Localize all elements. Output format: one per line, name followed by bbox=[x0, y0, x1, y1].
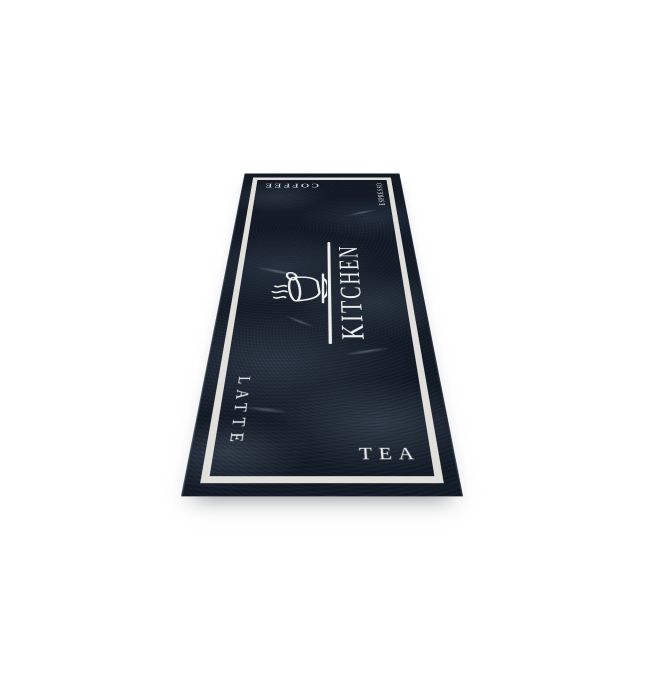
saucer-icon bbox=[323, 274, 327, 302]
coffee-cup-icon bbox=[264, 263, 327, 315]
kitchen-rug: COFFEE ESPRESSO LATTE TEA bbox=[181, 174, 463, 497]
product-photo: COFFEE ESPRESSO LATTE TEA bbox=[0, 0, 650, 680]
rug-perspective-wrap: COFFEE ESPRESSO LATTE TEA bbox=[222, 48, 422, 528]
tea-label: TEA bbox=[359, 445, 422, 465]
kitchen-label: KITCHEN bbox=[333, 242, 372, 344]
motif-underline bbox=[327, 242, 332, 344]
cup-icon bbox=[285, 270, 321, 301]
steam-icon bbox=[272, 286, 287, 299]
coffee-label: COFFEE bbox=[263, 182, 319, 188]
cup-handle-icon bbox=[285, 272, 298, 281]
center-motif: KITCHEN bbox=[261, 242, 385, 344]
